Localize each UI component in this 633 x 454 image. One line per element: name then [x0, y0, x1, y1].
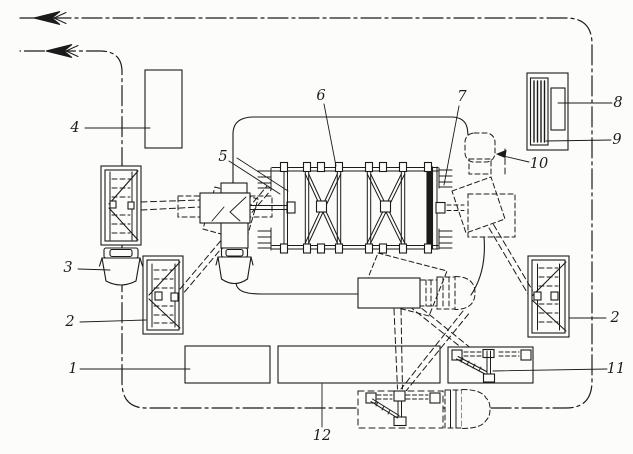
storage-area-12 [278, 346, 440, 383]
trailer-2-right [528, 256, 569, 337]
callout-label-1: 1 [68, 362, 77, 377]
yard-plan-drawing [0, 0, 633, 454]
crane-bay-11 [448, 347, 533, 383]
callout-label-3: 3 [63, 261, 72, 276]
truck-cab-5-icon [216, 248, 253, 284]
callout-label-8: 8 [613, 96, 622, 111]
trailer-2-left [143, 256, 183, 334]
machine-center-bottom [358, 253, 475, 316]
truss-chord-nodes [281, 163, 432, 254]
trailer-3 [101, 166, 141, 245]
callout-label-6: 6 [316, 89, 325, 104]
storage-area-1 [185, 346, 270, 383]
callout-label-5: 5 [218, 150, 227, 165]
truck-cab-3-icon [100, 248, 143, 285]
feed-curve-right [471, 237, 484, 295]
callout-label-7: 7 [457, 90, 466, 105]
callout-label-12: 12 [313, 429, 331, 444]
callout-label-4: 4 [70, 121, 79, 136]
crane-trailer-bottom [358, 391, 443, 428]
schematic-canvas: 1 2 3 4 5 6 7 8 9 10 11 2 12 [0, 0, 633, 454]
feed-curve-bottom [236, 283, 358, 294]
callout-label-10: 10 [530, 157, 548, 172]
callout-label-11: 11 [607, 362, 625, 377]
storage-area-4 [145, 70, 182, 148]
cabin-8-9 [527, 73, 568, 150]
callout-label-2-right: 2 [610, 311, 619, 326]
callout-label-9: 9 [612, 133, 621, 148]
truck-cab-10-icon [465, 133, 495, 174]
callout-label-2-left: 2 [65, 315, 74, 330]
truck-cab-bottom-icon [445, 390, 490, 429]
machine-position-7-dashed [452, 177, 515, 237]
